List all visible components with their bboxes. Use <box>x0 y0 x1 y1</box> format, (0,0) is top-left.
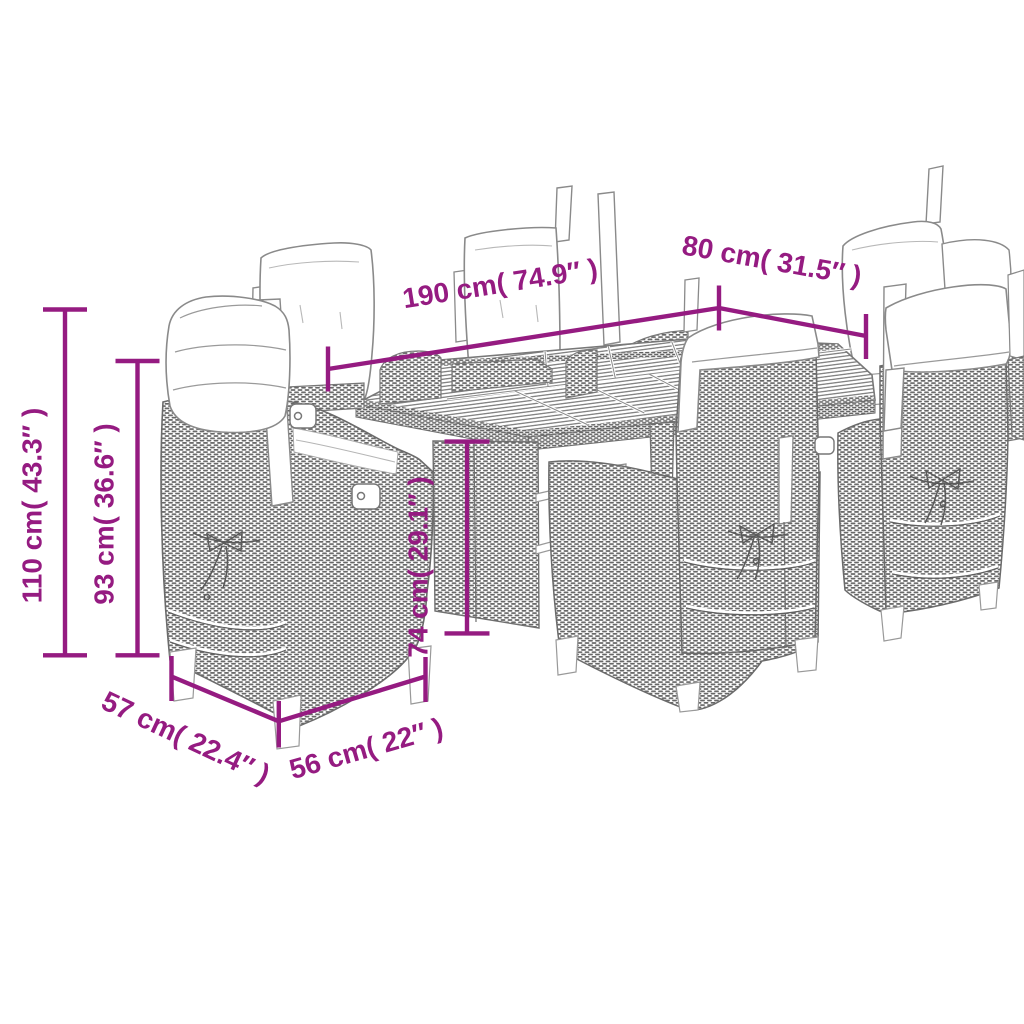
svg-text:74 cm( 29.1″ ): 74 cm( 29.1″ ) <box>403 476 434 658</box>
svg-text:93 cm( 36.6″ ): 93 cm( 36.6″ ) <box>89 423 120 605</box>
svg-text:110 cm( 43.3″ ): 110 cm( 43.3″ ) <box>17 408 48 604</box>
